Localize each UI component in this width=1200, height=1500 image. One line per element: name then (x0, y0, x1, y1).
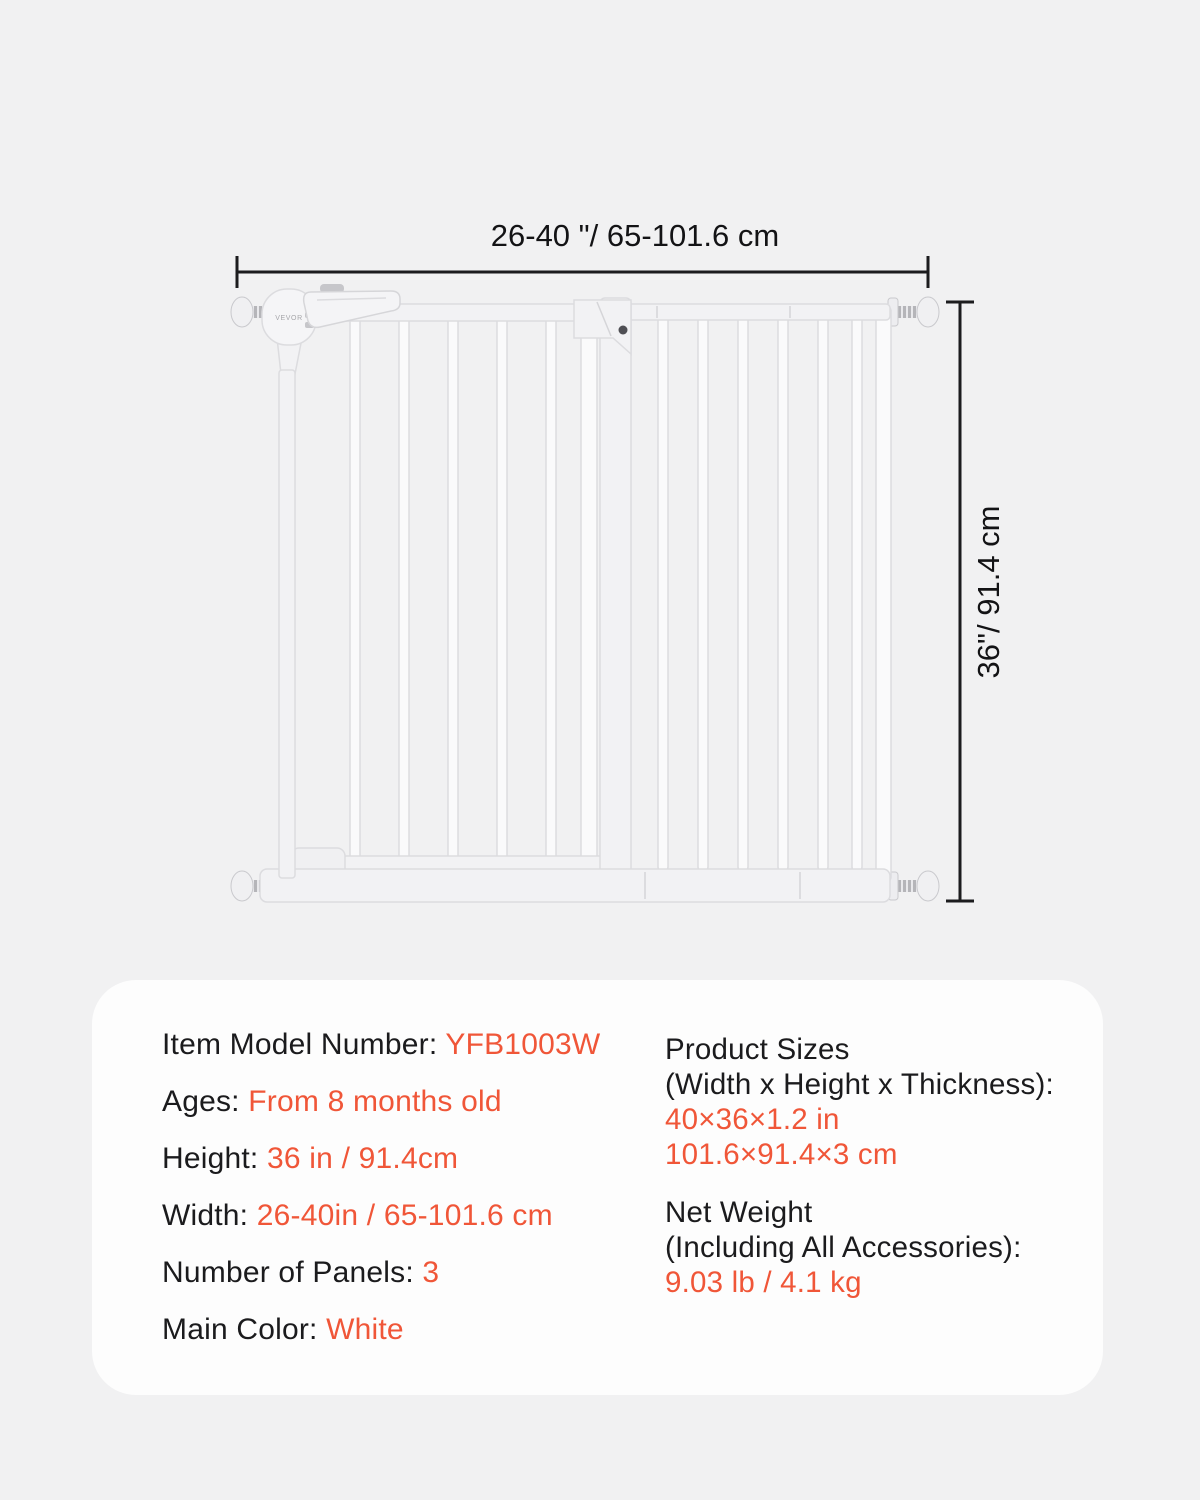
spec-list-left: Item Model Number: YFB1003W Ages: From 8… (162, 1026, 600, 1349)
spec-list-right: Product Sizes (Width x Height x Thicknes… (665, 1032, 1054, 1323)
spec-value: 36 in / 91.4cm (267, 1142, 458, 1175)
spec-label: Number of Panels: (162, 1256, 422, 1289)
gate-body: VEVOR (260, 284, 891, 902)
brand-logo: VEVOR (275, 315, 303, 322)
spec-row-width: Width: 26-40in / 65-101.6 cm (162, 1197, 600, 1235)
width-dimension-label: 26-40 "/ 65-101.6 cm (491, 218, 779, 253)
spec-row-model: Item Model Number: YFB1003W (162, 1026, 600, 1064)
spec-value: 26-40in / 65-101.6 cm (257, 1199, 553, 1232)
left-post (279, 370, 295, 878)
pressure-knob-top-right (888, 297, 939, 327)
spec-label: Ages: (162, 1085, 248, 1118)
panel-bars (658, 306, 891, 882)
spec-value: White (326, 1313, 404, 1346)
spec-label: Item Model Number: (162, 1028, 445, 1061)
spec-block-value: 101.6×91.4×3 cm (665, 1137, 1054, 1172)
spec-row-color: Main Color: White (162, 1311, 600, 1349)
spec-row-panels: Number of Panels: 3 (162, 1254, 600, 1292)
spec-value: YFB1003W (445, 1028, 600, 1061)
spec-label: Height: (162, 1142, 267, 1175)
bottom-rail (260, 869, 890, 902)
spec-block-title: Product Sizes (665, 1032, 1054, 1067)
product-diagram: VEVOR 26-40 "/ 65-101.6 cm 36"/ 91.4 cm (0, 0, 1200, 980)
spec-block-subtitle: (Including All Accessories): (665, 1230, 1054, 1265)
spec-row-height: Height: 36 in / 91.4cm (162, 1140, 600, 1178)
extension-top-rail (625, 304, 890, 320)
center-post (600, 298, 631, 895)
spec-row-ages: Ages: From 8 months old (162, 1083, 600, 1121)
spec-label: Main Color: (162, 1313, 326, 1346)
product-spec-page: VEVOR 26-40 "/ 65-101.6 cm 36"/ 91.4 cm … (0, 0, 1200, 1500)
spec-block-value: 40×36×1.2 in (665, 1102, 1054, 1137)
spec-block-subtitle: (Width x Height x Thickness): (665, 1067, 1054, 1102)
spec-block-product-sizes: Product Sizes (Width x Height x Thicknes… (665, 1032, 1054, 1172)
height-dimension-label: 36"/ 91.4 cm (971, 506, 1006, 679)
spec-label: Width: (162, 1199, 257, 1232)
gate-drawing: VEVOR 26-40 "/ 65-101.6 cm 36"/ 91.4 cm (0, 0, 1200, 980)
bracket-screw-dot (619, 326, 628, 335)
pressure-knob-bottom-right (888, 871, 939, 901)
spec-block-title: Net Weight (665, 1195, 1054, 1230)
spec-card: Item Model Number: YFB1003W Ages: From 8… (92, 980, 1103, 1395)
spec-block-net-weight: Net Weight (Including All Accessories): … (665, 1195, 1054, 1300)
spec-value: 3 (422, 1256, 439, 1289)
spec-value: From 8 months old (248, 1085, 502, 1118)
spec-block-value: 9.03 lb / 4.1 kg (665, 1265, 1054, 1300)
door-bars (350, 306, 597, 874)
